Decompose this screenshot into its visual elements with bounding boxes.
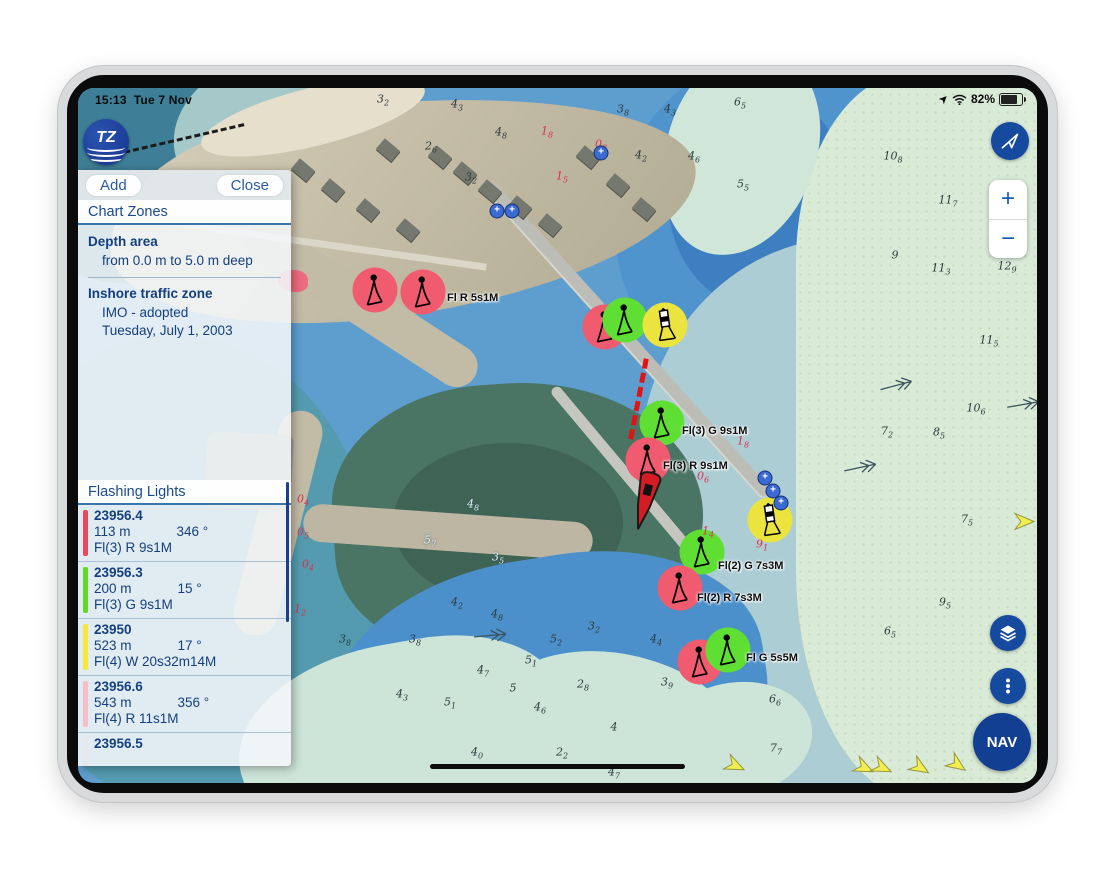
flare-beacon-icon — [407, 272, 440, 312]
light-label: Fl(2) R 7s3M — [697, 592, 762, 604]
depth-sounding: 77 — [770, 742, 782, 757]
page: Fl R 5s1MFl(3) G 9s1MFl(3) R 9s1MFl(2) G… — [0, 0, 1115, 870]
zoom-out-button[interactable]: − — [989, 220, 1027, 259]
depth-sounding: 51 — [444, 696, 456, 711]
depth-sounding: 106 — [966, 402, 985, 417]
mooring-buoy-icon[interactable]: + — [505, 204, 520, 219]
light-id: 23956.4 — [94, 508, 285, 523]
current-arrow-icon — [724, 757, 746, 780]
depth-sounding: 117 — [938, 194, 957, 209]
depth-sounding: 28 — [577, 678, 589, 693]
light-id: 23956.5 — [94, 736, 285, 751]
depth-sounding: 47 — [477, 664, 489, 679]
section-line: Tuesday, July 1, 2003 — [102, 323, 281, 338]
zoom-in-button[interactable]: + — [989, 180, 1027, 220]
screen: Fl R 5s1MFl(3) G 9s1MFl(3) R 9s1MFl(2) G… — [78, 88, 1037, 783]
light-marker-g[interactable] — [603, 298, 648, 343]
depth-sounding: 32 — [465, 171, 477, 186]
light-marker-g[interactable] — [706, 628, 751, 673]
depth-sounding: 26 — [425, 140, 437, 155]
tz-app-logo[interactable]: TZ — [83, 119, 129, 165]
current-arrow-icon — [909, 759, 931, 782]
depth-sounding: 57 — [424, 534, 436, 549]
flare-beacon-icon — [664, 568, 697, 608]
depth-sounding: 14 — [702, 525, 714, 540]
depth-sounding: 22 — [556, 746, 568, 761]
current-arrow-icon — [871, 759, 893, 782]
battery-percent: 82% — [971, 92, 995, 106]
light-color-bar — [83, 567, 88, 613]
flare-beacon-icon — [359, 270, 392, 310]
light-label: Fl R 5s1M — [447, 292, 498, 304]
light-color-bar — [83, 738, 88, 766]
flare-beacon-icon — [712, 630, 745, 670]
depth-sounding: 05 — [297, 526, 309, 541]
light-distance-bearing: 523 m17 ° — [94, 638, 285, 653]
tidal-stream-icon — [472, 628, 508, 649]
light-id: 23956.3 — [94, 565, 285, 580]
section-line: from 0.0 m to 5.0 m deep — [102, 253, 281, 268]
depth-sounding: 75 — [961, 513, 973, 528]
light-label: Fl(2) G 7s3M — [718, 560, 783, 572]
light-characteristic: Fl(4) R 11s1M — [94, 711, 285, 726]
light-distance-bearing: 543 m356 ° — [94, 695, 285, 710]
light-bearing: 346 ° — [177, 524, 209, 539]
mooring-buoy-icon[interactable]: + — [594, 146, 609, 161]
battery-icon — [999, 93, 1023, 106]
flashing-light-item[interactable]: 23956.6543 m356 °Fl(4) R 11s1M — [78, 676, 291, 733]
light-color-bar — [83, 510, 88, 556]
flashing-lights-title: Flashing Lights — [78, 480, 291, 505]
ipad-frame: Fl R 5s1MFl(3) G 9s1MFl(3) R 9s1MFl(2) G… — [58, 66, 1057, 802]
depth-sounding: 43 — [396, 688, 408, 703]
light-distance-bearing: 200 m15 ° — [94, 581, 285, 596]
panel-header: Add Close — [78, 170, 291, 200]
depth-sounding: 44 — [650, 633, 662, 648]
divider — [88, 277, 281, 278]
depth-sounding: 04 — [302, 558, 314, 573]
depth-sounding: 46 — [688, 150, 700, 165]
depth-sounding: 65 — [884, 625, 896, 640]
flare-beacon-icon — [609, 300, 642, 340]
mooring-buoy-icon[interactable]: + — [774, 496, 789, 511]
zoom-control: + − — [989, 180, 1027, 258]
current-arrow-icon — [946, 756, 968, 779]
light-distance: 523 m — [94, 638, 132, 653]
more-dots-icon — [999, 677, 1017, 695]
location-arrow-icon: ➤ — [937, 92, 951, 106]
add-button[interactable]: Add — [86, 175, 141, 196]
nav-button[interactable]: NAV — [973, 713, 1031, 771]
section-heading: Depth area — [88, 234, 281, 249]
depth-sounding: 38 — [339, 633, 351, 648]
close-button[interactable]: Close — [217, 175, 283, 196]
depth-sounding: 91 — [756, 538, 768, 553]
depth-sounding: 48 — [491, 608, 503, 623]
more-button[interactable] — [990, 668, 1026, 704]
info-panel: Add Close Chart Zones Depth area from 0.… — [78, 170, 291, 766]
light-marker-r[interactable] — [353, 268, 398, 313]
depth-sounding: 48 — [495, 126, 507, 141]
depth-sounding: 38 — [409, 633, 421, 648]
depth-sounding: 18 — [541, 125, 553, 140]
clock-and-date: 15:13 Tue 7 Nov — [95, 93, 192, 107]
current-arrow-icon — [1013, 513, 1035, 536]
light-marker-y[interactable] — [643, 303, 688, 348]
light-label: Fl G 5s5M — [746, 652, 798, 664]
light-id: 23950 — [94, 622, 285, 637]
depth-sounding: 5 — [510, 682, 517, 695]
depth-sounding: 113 — [931, 262, 950, 277]
flashing-light-item[interactable]: 23956.3200 m15 °Fl(3) G 9s1M — [78, 562, 291, 619]
depth-sounding: 40 — [471, 746, 483, 761]
locate-button[interactable] — [991, 122, 1029, 160]
light-id: 23956.6 — [94, 679, 285, 694]
layers-icon — [998, 623, 1018, 643]
wifi-icon — [952, 94, 967, 105]
tidal-stream-icon — [842, 460, 878, 481]
depth-sounding: 115 — [979, 334, 998, 349]
tower-beacon-icon — [649, 305, 682, 345]
light-label: Fl(3) G 9s1M — [682, 425, 747, 437]
depth-sounding: 85 — [933, 426, 945, 441]
depth-sounding: 48 — [467, 498, 479, 513]
depth-sounding: 15 — [556, 170, 568, 185]
chart-zones-title: Chart Zones — [78, 200, 291, 225]
list-scrollbar[interactable] — [286, 482, 289, 622]
depth-sounding: 52 — [550, 633, 562, 648]
light-characteristic: Fl(4) W 20s32m14M — [94, 654, 285, 669]
depth-sounding: 39 — [661, 676, 673, 691]
depth-sounding: 42 — [635, 149, 647, 164]
depth-sounding: 129 — [997, 260, 1016, 275]
depth-sounding: 04 — [297, 493, 309, 508]
send-arrow-icon — [1000, 131, 1020, 151]
depth-sounding: 12 — [294, 603, 306, 618]
depth-sounding: 72 — [881, 425, 893, 440]
tidal-stream-icon — [1005, 397, 1037, 418]
flashing-light-item[interactable]: 23950523 m17 °Fl(4) W 20s32m14M — [78, 619, 291, 676]
light-distance: 543 m — [94, 695, 132, 710]
light-distance: 113 m — [94, 524, 131, 539]
depth-sounding: 35 — [492, 551, 504, 566]
depth-sounding: 66 — [769, 693, 781, 708]
status-bar: 15:13 Tue 7 Nov ➤ 82% — [78, 88, 1037, 110]
light-label: Fl(3) R 9s1M — [663, 460, 728, 472]
depth-sounding: 95 — [939, 596, 951, 611]
depth-sounding: 46 — [534, 701, 546, 716]
flashing-light-item[interactable]: 23956.5 — [78, 733, 291, 766]
section-line: IMO - adopted — [102, 305, 281, 320]
light-bearing: 15 ° — [178, 581, 202, 596]
light-distance: 200 m — [94, 581, 132, 596]
depth-sounding: 9 — [892, 249, 899, 262]
depth-sounding: 32 — [588, 620, 600, 635]
section-heading: Inshore traffic zone — [88, 286, 281, 301]
depth-sounding: 55 — [737, 178, 749, 193]
light-characteristic: Fl(3) R 9s1M — [94, 540, 285, 555]
light-characteristic: Fl(3) G 9s1M — [94, 597, 285, 612]
light-color-bar — [83, 624, 88, 670]
light-color-bar — [83, 681, 88, 727]
depth-sounding: 51 — [525, 654, 537, 669]
depth-sounding: 42 — [451, 596, 463, 611]
light-bearing: 356 ° — [178, 695, 210, 710]
flashing-light-item[interactable]: 23956.4113 m346 °Fl(3) R 9s1M — [78, 505, 291, 562]
tidal-stream-icon — [878, 378, 914, 399]
light-distance-bearing: 113 m346 ° — [94, 524, 285, 539]
light-marker-r[interactable] — [658, 566, 703, 611]
flashing-lights-list: 23956.4113 m346 °Fl(3) R 9s1M23956.3200 … — [78, 505, 291, 766]
depth-sounding: 4 — [611, 721, 618, 734]
mooring-buoy-icon[interactable]: + — [490, 204, 505, 219]
depth-sounding: 108 — [883, 150, 902, 165]
home-indicator[interactable] — [430, 764, 685, 769]
light-marker-r[interactable] — [401, 270, 446, 315]
light-bearing: 17 ° — [178, 638, 202, 653]
layers-button[interactable] — [990, 615, 1026, 651]
